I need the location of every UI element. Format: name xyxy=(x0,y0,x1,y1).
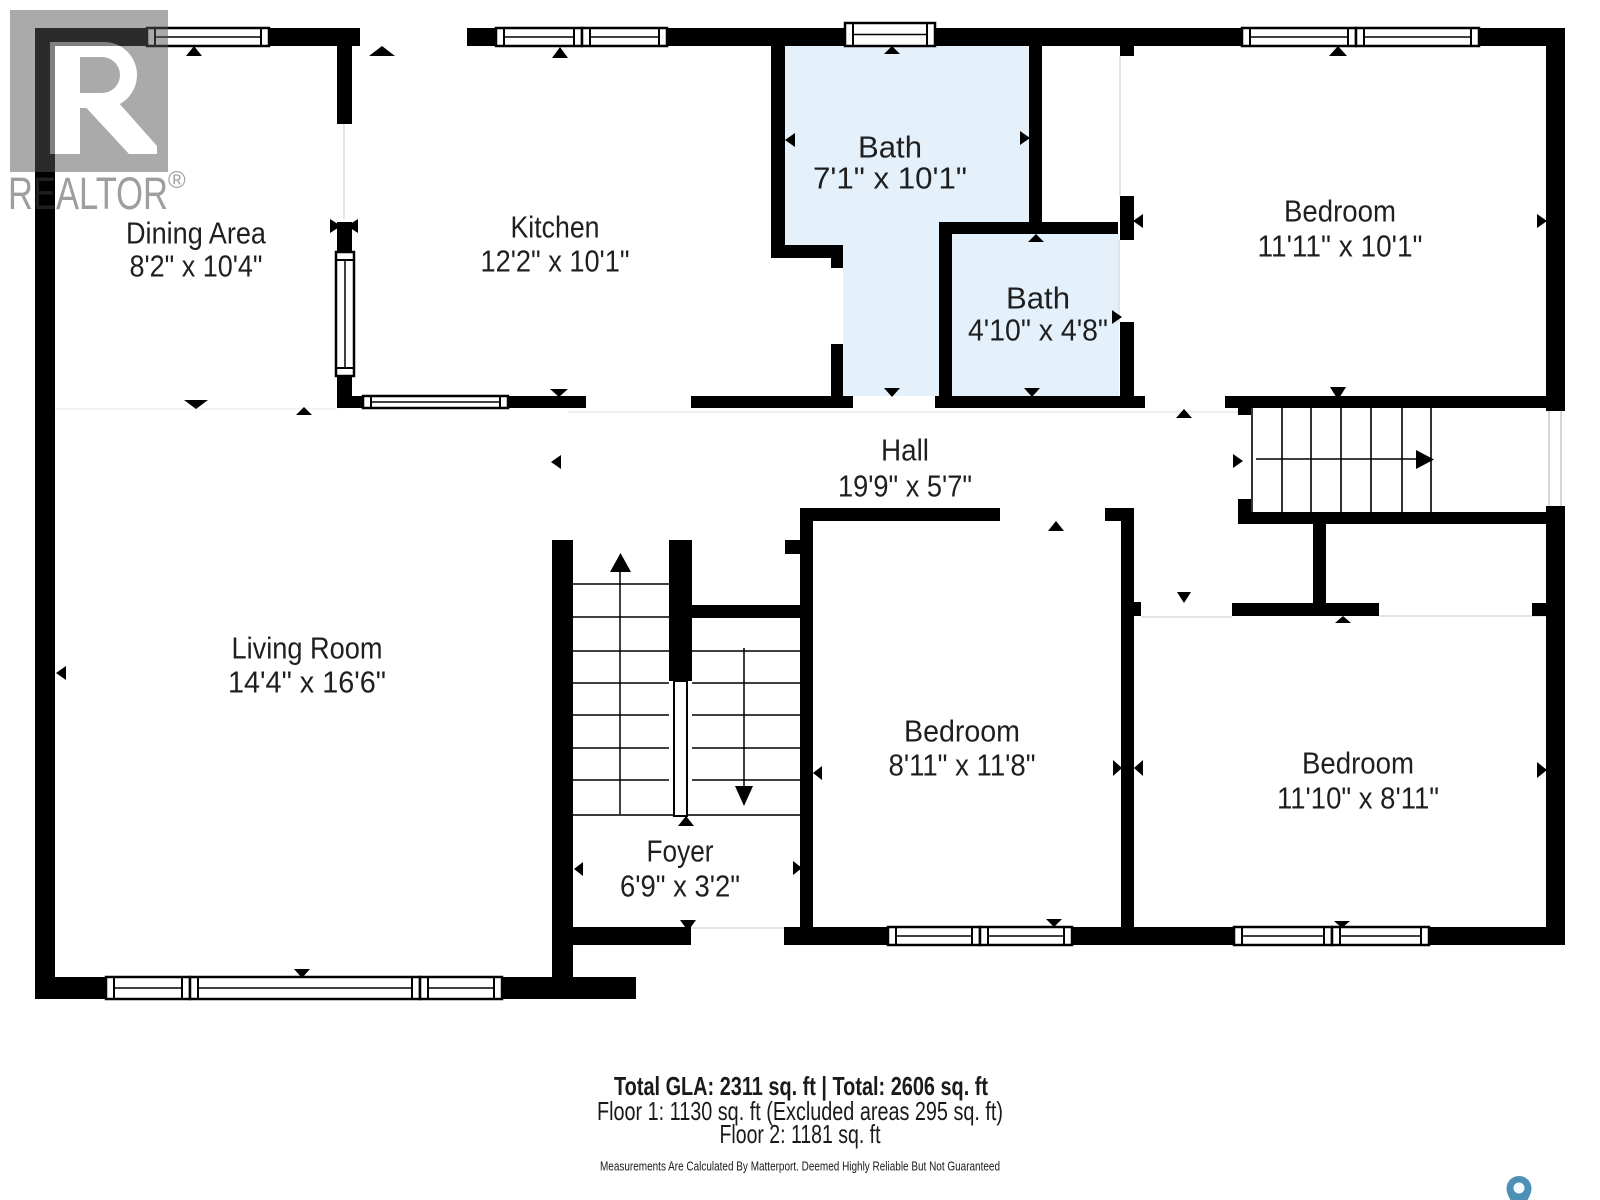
svg-text:®: ® xyxy=(168,167,186,194)
svg-text:Measurements Are Calculated By: Measurements Are Calculated By Matterpor… xyxy=(600,1159,1000,1174)
svg-text:Floor 2: 1181 sq. ft: Floor 2: 1181 sq. ft xyxy=(720,1119,882,1149)
svg-text:REALTOR: REALTOR xyxy=(8,168,168,219)
svg-text:6'9" x 3'2": 6'9" x 3'2" xyxy=(620,869,740,904)
svg-text:19'9" x 5'7": 19'9" x 5'7" xyxy=(838,469,972,504)
svg-text:Kitchen: Kitchen xyxy=(511,210,600,245)
svg-text:11'11" x 10'1": 11'11" x 10'1" xyxy=(1258,229,1423,264)
svg-text:Bath: Bath xyxy=(1006,281,1070,316)
svg-text:Hall: Hall xyxy=(881,433,929,468)
svg-text:8'2" x 10'4": 8'2" x 10'4" xyxy=(130,249,263,284)
svg-text:Bedroom: Bedroom xyxy=(1284,194,1396,229)
svg-text:Bedroom: Bedroom xyxy=(904,714,1020,749)
svg-text:14'4" x 16'6": 14'4" x 16'6" xyxy=(228,665,386,700)
svg-text:Foyer: Foyer xyxy=(647,834,714,869)
svg-text:Bath: Bath xyxy=(858,130,922,165)
svg-text:11'10" x 8'11": 11'10" x 8'11" xyxy=(1277,781,1439,816)
svg-text:12'2" x 10'1": 12'2" x 10'1" xyxy=(481,244,630,279)
svg-text:7'1" x 10'1": 7'1" x 10'1" xyxy=(813,161,967,196)
svg-text:Living Room: Living Room xyxy=(232,631,383,666)
svg-text:Dining Area: Dining Area xyxy=(126,216,267,251)
svg-text:4'10" x 4'8": 4'10" x 4'8" xyxy=(968,313,1108,348)
svg-text:8'11" x 11'8": 8'11" x 11'8" xyxy=(889,748,1036,783)
svg-text:Bedroom: Bedroom xyxy=(1302,746,1414,781)
